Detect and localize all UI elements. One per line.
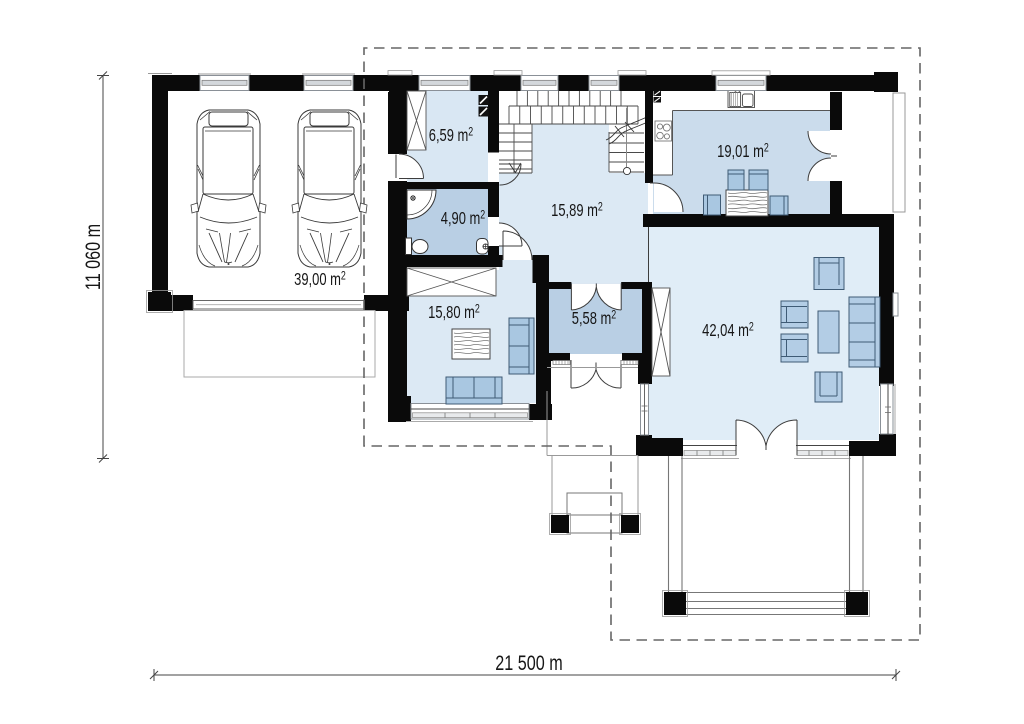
svg-text:4,90 m2: 4,90 m2: [441, 208, 486, 228]
svg-text:19,01 m2: 19,01 m2: [717, 141, 769, 161]
svg-text:21 500 m: 21 500 m: [495, 651, 562, 675]
svg-text:6,59 m2: 6,59 m2: [429, 125, 474, 145]
svg-text:15,80 m2: 15,80 m2: [428, 302, 480, 322]
svg-text:5,58 m2: 5,58 m2: [572, 308, 617, 328]
svg-text:11 060 m: 11 060 m: [81, 224, 105, 290]
svg-text:15,89 m2: 15,89 m2: [551, 200, 603, 220]
svg-text:39,00 m2: 39,00 m2: [294, 269, 346, 289]
svg-text:42,04 m2: 42,04 m2: [702, 320, 754, 340]
